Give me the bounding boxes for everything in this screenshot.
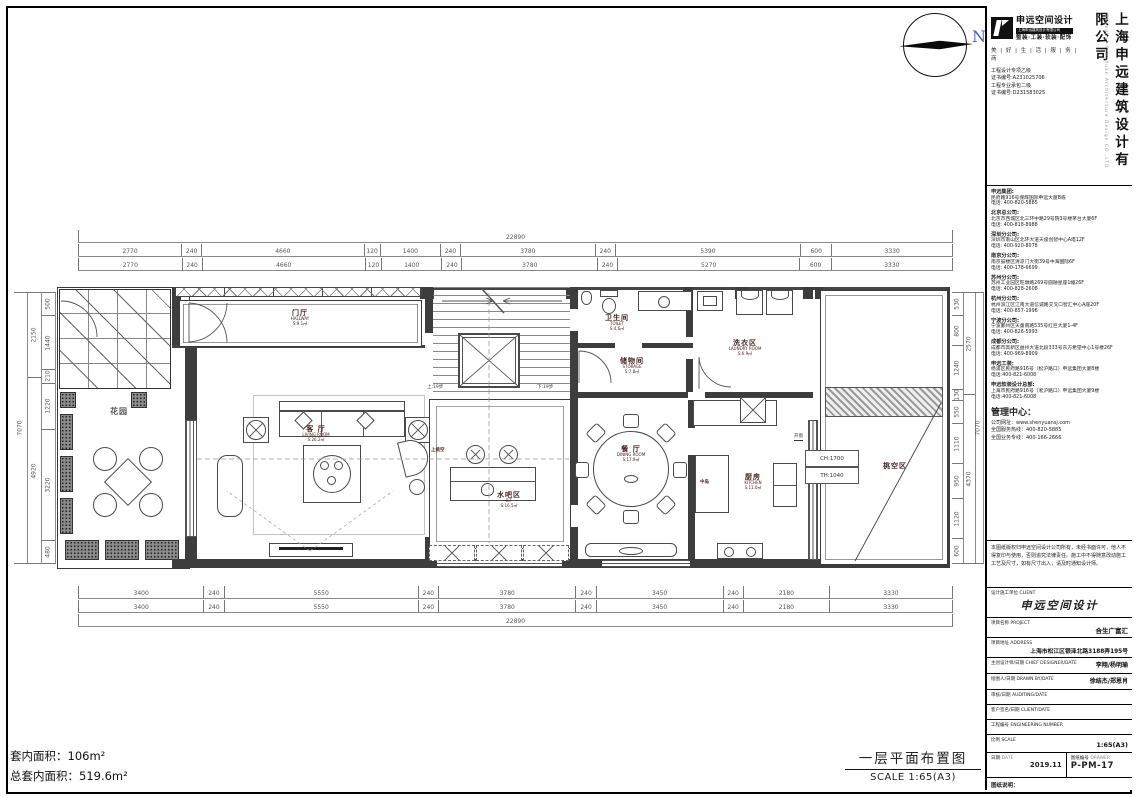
certificate-line: 证书编号:D231583025: [991, 90, 1086, 98]
office-phone: 电话: 400-818-8988: [991, 223, 1128, 229]
room-label-toilet: 卫生间 TOILET S:4.6㎡: [605, 314, 629, 331]
office-entry: 申远集团: 民府路916号保辉国际申远大厦B栋 电话: 400-820-5885: [991, 189, 1128, 207]
plant-box: [65, 540, 99, 560]
project-name: 合生广富汇: [991, 625, 1128, 635]
certificate-line: 证书编号:A231025706: [991, 75, 1086, 83]
bar-counter: [450, 467, 536, 501]
bar-stool: [499, 445, 518, 464]
void-room-inner: [825, 295, 943, 560]
office-phone: 电话: 400-820-5885: [991, 201, 1128, 207]
stove: [717, 543, 763, 559]
tb-date-number: 日期 DATE 2019.11 图纸编号 DRAWER P-PM-17: [987, 753, 1132, 778]
room-label-dining: 餐 厅 DINING ROOM S:17.9㎡: [617, 445, 645, 462]
office-phone: 电话: 400-826-5993: [991, 330, 1128, 336]
office-phone: 电话:400-821-6008: [991, 373, 1128, 379]
room-label-hallway: 门厅 HALLWAY S:9.1㎡: [291, 309, 309, 326]
dim-bottom-total: 22890: [78, 614, 953, 627]
tall-cabinet: [773, 463, 797, 507]
client-signature: 申远空间设计: [991, 597, 1128, 613]
garden-chair: [93, 447, 117, 471]
washer: [736, 290, 763, 315]
office-entry: 北京总公司: 北京市西城区北三环中路29号院3号楼茅台大厦6F 电话: 400-…: [991, 210, 1128, 228]
stair-up-label: 上:19步: [427, 384, 443, 390]
title-block: 上海申远建筑设计有限公司 Shanghai ShenYuan Architect…: [985, 6, 1132, 790]
tb-clientsign-row: 客户签名/日期 CLIENT/DATE: [987, 705, 1132, 720]
tb-client-row: 设计施工单位 CLIENT 申远空间设计: [987, 588, 1132, 618]
tb-audit-row: 审核/日期 AUDITING/DATE: [987, 690, 1132, 705]
urinal: [581, 291, 592, 305]
north-label: N: [972, 27, 986, 46]
flue-box: [740, 397, 766, 423]
dining-chair: [623, 414, 639, 428]
sheet-title: 一层平面布置图 SCALE 1:65(A3): [845, 747, 981, 783]
garden-chair: [139, 447, 163, 471]
dining-table: [593, 431, 669, 507]
garden-chair: [139, 493, 163, 517]
dim-top-total: 22890: [78, 230, 953, 243]
chaise-chair: [217, 455, 243, 517]
room-label-void: 挑空区: [883, 462, 907, 470]
management-line: 全国业务专线：400-166-2666: [991, 435, 1128, 443]
table-centerpiece: [624, 475, 638, 483]
office-entry: 宁波分公司: 宁波鄞州区天童南路535号红巨大厦1-4F 电话: 400-826…: [991, 318, 1128, 336]
drawing-number: P-PM-17: [1071, 761, 1114, 771]
tb-notes: 图纸说明： 1、图纸尺寸采用公制，以毫米为单位；2、图纸所标尺寸以现场实际勘测为…: [987, 778, 1132, 790]
garden-window: [185, 420, 197, 537]
cabinet-dashed: [523, 545, 569, 561]
company-name-en: Shanghai ShenYuan Architecture Design CO…: [1103, 14, 1108, 168]
tv-screen: [279, 547, 343, 550]
office-entry: 申远软装设计总部: 上海市民府路916号（淞沪路口）申远集团大厦9楼 电话:40…: [991, 382, 1128, 400]
plant-box: [60, 498, 73, 534]
certificates: 工程设计专项乙级证书编号:A231025706工程专业承包二级证书编号:D231…: [991, 68, 1086, 98]
dining-chair: [655, 494, 676, 515]
tb-scale-row: 比例 SCALE 1:65(A3): [987, 735, 1132, 753]
brand-services: 整装·工装·软装·配饰: [1016, 35, 1073, 41]
person-figure: [481, 483, 494, 496]
garden-paving: [59, 289, 171, 389]
brand-tagline: 美 | 好 | 生 | 活 | 服 | 务 | 商: [991, 46, 1086, 62]
room-label-garden: 花园: [110, 407, 128, 416]
management-lines: 公司网址：www.shenyuansj.com全国服务热线：400-820-58…: [991, 420, 1128, 443]
office-phone: 电话: 400-828-2608: [991, 287, 1128, 293]
brand-bar: 上海申远建筑设计有限公司: [1016, 28, 1073, 34]
sideboard: [585, 543, 677, 557]
area-summary: 套内面积：106m² 总套内面积：519.6m²: [10, 747, 128, 786]
sill-height-chip: TH:1040: [805, 467, 859, 484]
stair-down-label: 下:19步: [537, 384, 553, 390]
copyright-note: 本图纸版权归申远空间设计公司所有，未经书面许可，他人不得复印与使用，否则追究法律…: [991, 544, 1128, 568]
drawing-title: 一层平面布置图: [845, 747, 981, 770]
floor-plan: 门厅 HALLWAY S:9.1㎡ 客 厅 LIVING ROOM S:26.2…: [57, 287, 955, 568]
office-entry: 申远工装: 杨浦区民府路916号（松沪路口）申远集团大厦8楼 电话:400-82…: [991, 361, 1128, 379]
management-title: 管理中心：: [991, 405, 1128, 418]
ottoman: [409, 479, 425, 495]
brand-name: 申远空间设计: [1016, 17, 1073, 27]
company-name-cn: 上海申远建筑设计有限公司: [1090, 12, 1130, 185]
plant-box: [145, 540, 179, 560]
shenyuan-logo-icon: [991, 17, 1013, 39]
office-phone: 电话: 400-969-8909: [991, 352, 1128, 358]
room-label-kitchen: 厨房 KITCHEN S:11.0㎡: [744, 473, 761, 490]
dim-left-inner: 500144021012203220480: [42, 292, 56, 564]
cabinet-dashed: [476, 545, 522, 561]
coffee-table: [303, 445, 361, 503]
island-label: 中岛: [700, 479, 709, 485]
tb-offices: 申远集团: 民府路916号保辉国际申远大厦B栋 电话: 400-820-5885…: [987, 186, 1132, 541]
dining-chair: [655, 422, 676, 443]
room-label-storage: 储物间 STORAGE S:7.8㎡: [620, 357, 644, 374]
office-entry: 深圳分公司: 深圳市南山区北环大道天俊创智中心A塔12F 电话: 400-920…: [991, 232, 1128, 250]
tb-project-row: 项目名称 PROJECT 合生广富汇: [987, 618, 1132, 638]
dim-top-row3: 277024046601201400240378024052706003330: [78, 258, 953, 271]
dim-left-mid: 21504920: [28, 292, 42, 564]
tb-head: 上海申远建筑设计有限公司 Shanghai ShenYuan Architect…: [987, 6, 1132, 186]
office-phone: 电话: 400-920-8078: [991, 244, 1128, 250]
laundry-sink: [697, 291, 723, 311]
dining-chair: [673, 462, 687, 478]
tb-address-row: 项目地址 ADDRESS 上海市松江区银泽北路3188弄195号: [987, 638, 1132, 658]
tb-drawnby-row: 绘图人/日期 DRAWN BY/DATE 徐结杰/郑恩肖: [987, 674, 1132, 690]
room-label-bar: 水吧区 B.F S:16.5㎡: [497, 491, 521, 508]
tb-engnumber-row: 工程编号 ENGINEERING NUMBER: [987, 720, 1132, 735]
dim-right-outer: 7070: [975, 292, 984, 564]
sofa-back: [279, 401, 405, 411]
office-entry: 成都分公司: 成都市高新区益州大道北段333号东方希望中心1号楼26F 电话: …: [991, 339, 1128, 357]
side-table: [243, 417, 269, 443]
cabinet-dashed: [429, 545, 475, 561]
dining-chair: [585, 494, 606, 515]
dining-chair: [623, 510, 639, 524]
elevator: [458, 333, 520, 388]
room-label-living: 客 厅 LIVING ROOM S:26.2㎡: [302, 425, 329, 442]
open-window-label: 开窗: [794, 433, 803, 441]
toilet-bowl: [602, 298, 616, 314]
plant-box: [60, 456, 73, 492]
dim-bottom-row1: 340024055502403780240345024021803330: [78, 586, 953, 599]
vanity-counter: [638, 291, 692, 311]
plant-box: [60, 392, 76, 408]
office-entry: 苏州分公司: 苏州工业园区旺墩路269号圆融星座1幢26F 电话: 400-82…: [991, 275, 1128, 293]
unit-area: 套内面积：106m²: [10, 747, 128, 767]
ceiling-height-chip: CH:1700: [805, 450, 859, 467]
north-compass: [903, 13, 967, 77]
office-entry: 杭州分公司: 杭州滨江区江南大道信诚路交叉口智汇中心A座20F 电话: 400-…: [991, 296, 1128, 314]
plant-box: [105, 540, 139, 560]
plant-box: [60, 414, 73, 450]
office-phone: 电话:400-821-6008: [991, 395, 1128, 401]
tb-designer-row: 主创设计师/日期 CHIEF DESIGNER/DATE 李翔/杨明瑜: [987, 658, 1132, 674]
date-value: 2019.11: [991, 761, 1062, 769]
dining-chair: [585, 422, 606, 443]
garden-chair: [93, 493, 117, 517]
bar-stool: [466, 445, 485, 464]
tv-cabinet: [269, 543, 353, 557]
toilet-tank: [600, 290, 618, 297]
upvoid-label: 上挑空: [431, 447, 445, 453]
office-phone: 电话: 400-178-6699: [991, 266, 1128, 272]
office-entry: 南京分公司: 南京鼓楼区清凉门大街39号中海国际6F 电话: 400-178-6…: [991, 253, 1128, 271]
dim-top-row2: 277024046601201400240378024053906003330: [78, 244, 953, 257]
plant-box: [131, 392, 147, 408]
client-label: 设计施工单位 CLIENT: [991, 590, 1128, 596]
dining-chair: [575, 462, 589, 478]
kitchen-east-window: [808, 420, 818, 560]
project-address: 上海市松江区银泽北路3188弄195号: [991, 646, 1128, 655]
office-address: 成都市高新区益州大道北段333号东方希望中心1号楼26F: [991, 346, 1128, 352]
management-line: 全国服务热线：400-820-5885: [991, 427, 1128, 435]
bay-window-band: [175, 287, 422, 297]
room-label-laundry: 洗衣区 LAUNDRY ROOM S:6.9㎡: [729, 339, 762, 356]
tb-copyright: 本图纸版权归申远空间设计公司所有，未经书面许可，他人不得复印与使用，否则追究法律…: [987, 541, 1132, 588]
office-phone: 电话: 400-857-1996: [991, 309, 1128, 315]
drawing-scale: SCALE 1:65(A3): [845, 772, 981, 783]
dim-left-outer: 7070: [14, 292, 28, 564]
washer: [766, 290, 793, 315]
total-area: 总套内面积：519.6m²: [10, 767, 128, 787]
void-hatch-band: [825, 387, 943, 417]
dim-bottom-row2: 340024055502403780240345024021803330: [78, 600, 953, 613]
